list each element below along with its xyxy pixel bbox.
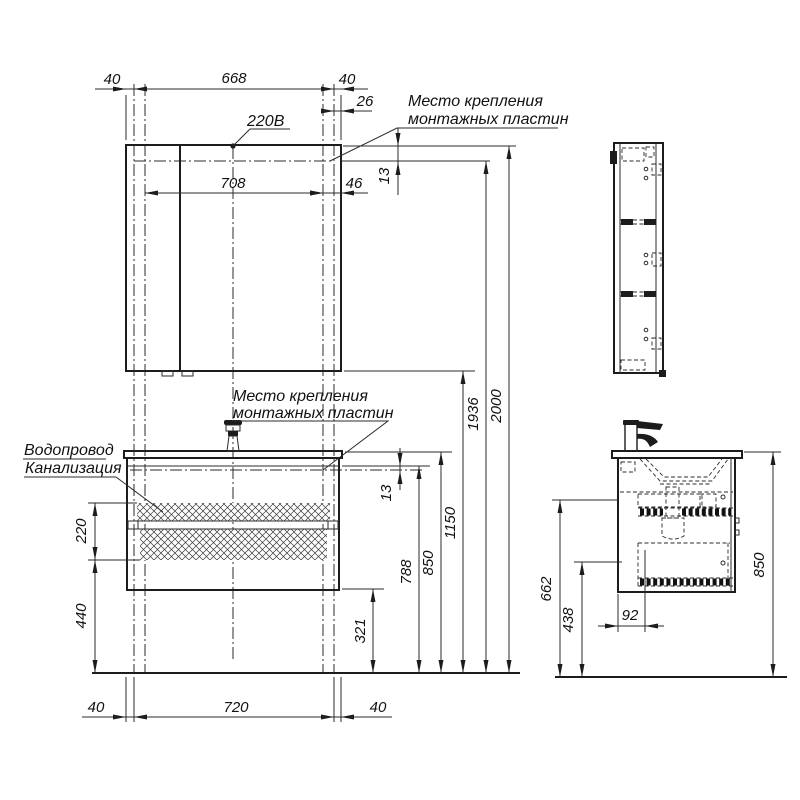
dimension-mirror-width: 708 46 <box>145 175 368 193</box>
dim-788: 788 <box>398 559 415 585</box>
side-foot <box>659 370 666 377</box>
dim-438: 438 <box>560 607 577 633</box>
dim-1936: 1936 <box>465 397 482 431</box>
dimension-side-view: 662 438 92 850 <box>538 452 781 677</box>
mounting-zone-hatch-lower <box>140 529 327 560</box>
dim-bottom-720: 720 <box>223 699 249 716</box>
dim-92: 92 <box>622 607 639 624</box>
dim-vanity-13: 13 <box>378 484 395 501</box>
installation-drawing: 40 668 40 26 708 46 13 13 321 78 <box>0 0 800 800</box>
plumbing-label-line1: Водопровод <box>24 442 114 459</box>
dim-top-left-40: 40 <box>104 71 121 88</box>
dim-440: 440 <box>73 603 90 629</box>
wall-plate-hidden <box>621 462 635 472</box>
dim-220: 220 <box>73 518 90 545</box>
dim-plate-26: 26 <box>356 93 374 110</box>
dimension-bottom-row: 40 720 40 <box>82 677 392 722</box>
technical-drawing-page: 40 668 40 26 708 46 13 13 321 78 <box>0 0 800 800</box>
faucet-spout <box>637 434 658 447</box>
mount-label-front-line1: Место крепления <box>233 388 368 405</box>
power-label: 220В <box>246 113 285 130</box>
vanity-side-view <box>612 420 742 592</box>
mounting-zone-hatch-upper <box>137 503 330 521</box>
vanity-side-outline <box>618 458 735 592</box>
callout-power: 220В <box>233 113 290 146</box>
dim-mirror-13: 13 <box>376 167 393 184</box>
hinge-block <box>610 151 617 164</box>
siphon-hidden <box>662 487 684 539</box>
hinge-plate-hidden <box>622 148 644 161</box>
mount-label-front-line2: монтажных пластин <box>233 405 394 422</box>
dimension-top-row: 40 668 40 26 <box>95 70 374 111</box>
plumbing-label-line2: Канализация <box>25 460 122 477</box>
vanity-front-view <box>124 420 342 590</box>
dim-662: 662 <box>538 576 555 602</box>
faucet-front <box>224 420 242 451</box>
dim-2000: 2000 <box>488 389 505 424</box>
countertop-side <box>612 451 742 458</box>
mirror-cabinet-side-view <box>610 143 666 377</box>
dim-850: 850 <box>420 550 437 576</box>
dimension-heights: 13 13 321 788 850 1150 1936 2000 <box>342 128 516 673</box>
dim-mirror-708: 708 <box>220 175 246 192</box>
faucet-lever <box>637 421 663 430</box>
dim-bottom-left-40: 40 <box>88 699 105 716</box>
dim-321: 321 <box>352 618 369 643</box>
dim-mirror-46: 46 <box>346 175 363 192</box>
callout-plumbing: Водопровод Канализация <box>23 442 163 512</box>
dim-side-850: 850 <box>751 552 768 578</box>
mount-label-top-line1: Место крепления <box>408 93 543 110</box>
dim-top-right-40: 40 <box>339 71 356 88</box>
dim-1150: 1150 <box>442 506 459 539</box>
sink-bowl-hidden <box>640 459 728 484</box>
faucet-side <box>623 420 663 451</box>
mount-label-top-line2: монтажных пластин <box>408 111 569 128</box>
dim-top-668: 668 <box>221 70 247 87</box>
dim-bottom-right-40: 40 <box>370 699 387 716</box>
drawers-hidden <box>620 492 733 588</box>
